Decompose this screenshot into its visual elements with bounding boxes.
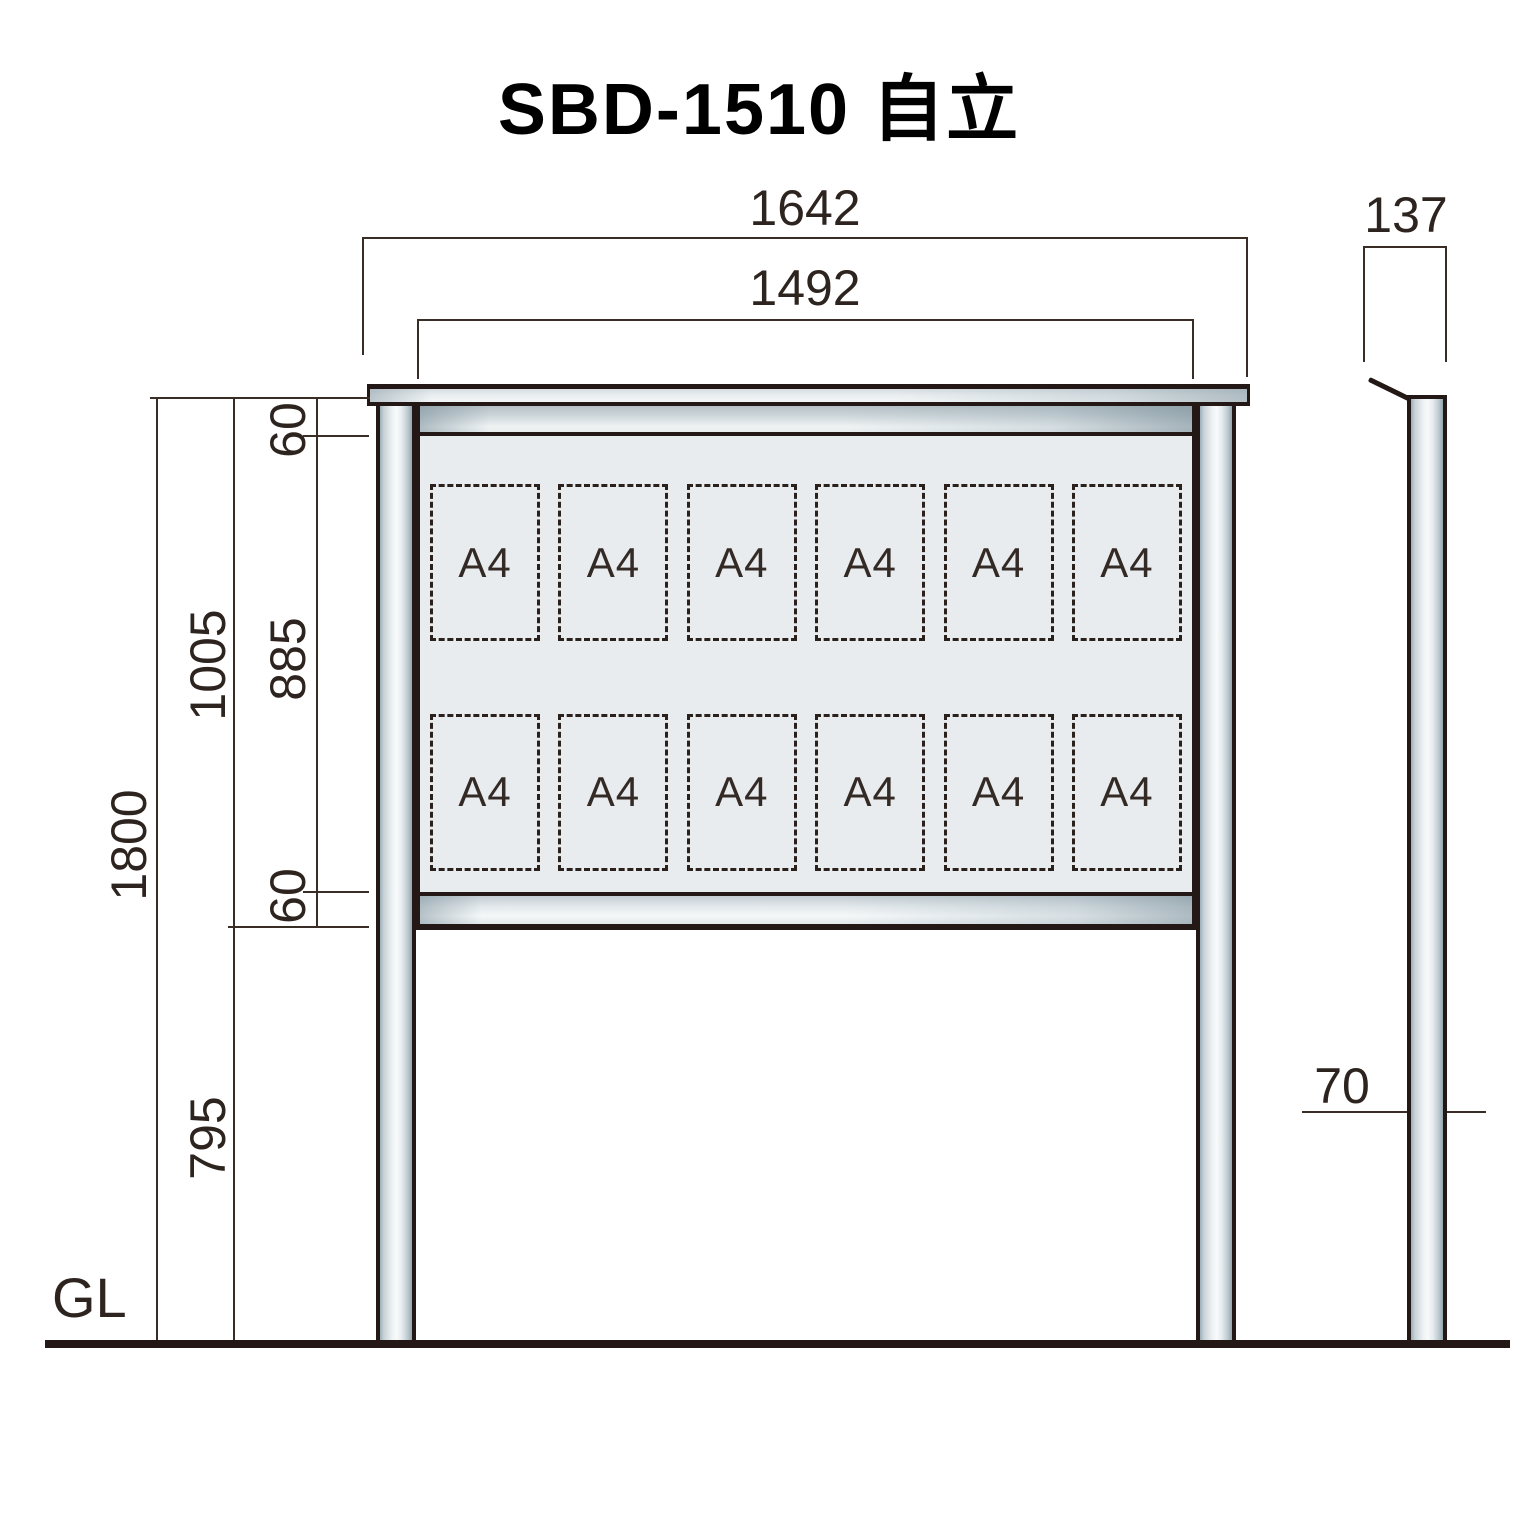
a4-slot: A4 [430, 484, 540, 641]
a4-slot: A4 [687, 484, 797, 641]
dim-height-overall: 1800 [104, 789, 154, 900]
dimension-line-opening [316, 397, 318, 928]
a4-slot: A4 [558, 484, 668, 641]
board-frame: A4 A4 A4 A4 A4 A4 A4 A4 A4 A4 A4 A4 [416, 403, 1196, 930]
left-post [376, 403, 416, 1343]
dimension-tick-board-bottom [228, 926, 369, 928]
technical-drawing: SBD-1510 自立 A4 A4 A4 A4 A4 A4 A4 A4 A4 A… [0, 0, 1518, 1518]
dimension-extension [417, 319, 419, 379]
a4-slot: A4 [430, 714, 540, 871]
dimension-line-width-overall [362, 237, 1248, 239]
dim-frame-bottom: 60 [263, 868, 313, 924]
a4-slot: A4 [944, 714, 1054, 871]
a4-slot: A4 [558, 714, 668, 871]
dimension-extension [1363, 246, 1365, 362]
dimension-tick-top [150, 397, 370, 399]
dim-height-board: 1005 [183, 609, 233, 720]
dim-leg-height: 795 [183, 1096, 233, 1179]
board-bottom-rail [420, 892, 1192, 930]
ground-level-label: GL [52, 1270, 127, 1326]
dim-width-board: 1492 [749, 263, 860, 313]
dimension-extension [1246, 237, 1248, 377]
a4-slot: A4 [687, 714, 797, 871]
dim-opening-height: 885 [263, 617, 313, 700]
ground-line [45, 1340, 1510, 1348]
right-post [1196, 403, 1236, 1343]
top-cap [367, 384, 1250, 406]
dimension-line-depth [1363, 246, 1447, 248]
a4-slot: A4 [815, 484, 925, 641]
a4-slot: A4 [1072, 484, 1182, 641]
board-top-rail [420, 403, 1192, 436]
dimension-line-width-board [417, 319, 1194, 321]
dim-depth: 137 [1364, 190, 1447, 240]
side-pole [1407, 395, 1447, 1343]
drawing-title: SBD-1510 自立 [0, 50, 1518, 155]
dimension-line-height-board [233, 397, 235, 1343]
dim-frame-top: 60 [263, 402, 313, 458]
dim-width-overall: 1642 [749, 183, 860, 233]
a4-slot: A4 [944, 484, 1054, 641]
dimension-extension [1445, 246, 1447, 362]
display-panel: A4 A4 A4 A4 A4 A4 A4 A4 A4 A4 A4 A4 [420, 436, 1192, 892]
a4-slot: A4 [1072, 714, 1182, 871]
dim-pole-width: 70 [1314, 1061, 1370, 1111]
dimension-extension [362, 237, 364, 355]
a4-slot: A4 [815, 714, 925, 871]
dimension-extension [1192, 319, 1194, 379]
side-cap-edge [1368, 377, 1411, 401]
